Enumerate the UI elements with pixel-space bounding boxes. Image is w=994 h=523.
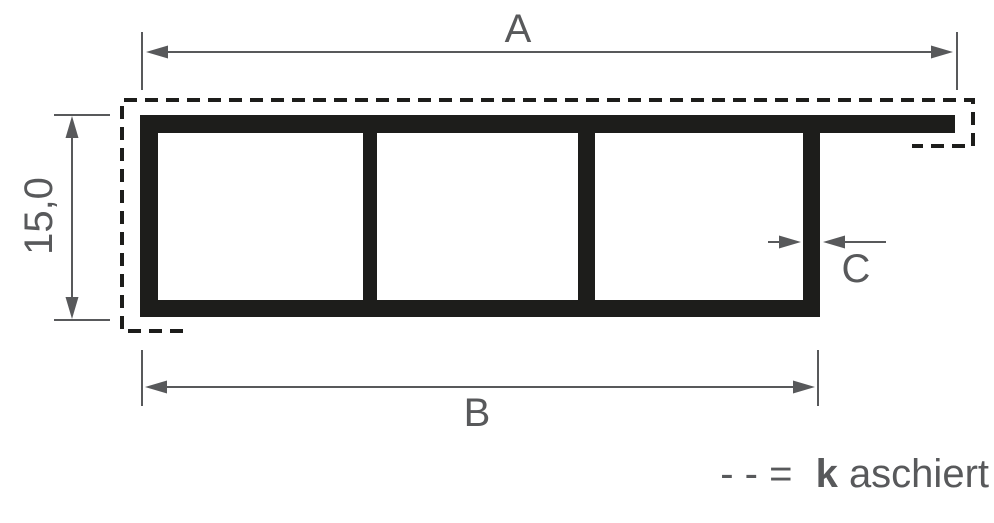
profile-drawing-svg: A 15,0 B C - - <box>0 0 994 523</box>
profile-chamber-2 <box>377 133 578 300</box>
arrow-left-icon <box>146 46 168 59</box>
dimension-b-label: B <box>464 391 491 435</box>
arrow-left-icon <box>145 381 167 394</box>
legend-kaschiert: - - = k aschiert <box>720 452 989 496</box>
arrow-right-icon <box>793 381 815 394</box>
legend-dash-symbol: - - = <box>720 452 792 496</box>
dimension-b: B <box>142 350 818 435</box>
profile-shape <box>140 115 955 317</box>
technical-drawing-canvas: A 15,0 B C - - <box>0 0 994 523</box>
arrow-down-icon <box>66 297 79 319</box>
profile-chamber-3 <box>595 133 803 300</box>
arrow-right-icon <box>931 46 953 59</box>
dimension-height-label: 15,0 <box>17 177 61 255</box>
dimension-a-label: A <box>505 7 532 51</box>
profile-top-flange-overhang <box>820 115 955 133</box>
dimension-c-label: C <box>842 247 871 291</box>
legend-term-rest: aschiert <box>849 452 989 496</box>
profile-chamber-1 <box>158 133 363 300</box>
legend-term-bold: k <box>816 452 839 496</box>
dimension-a: A <box>142 7 957 90</box>
dimension-height: 15,0 <box>17 115 110 320</box>
arrow-up-icon <box>66 116 79 138</box>
